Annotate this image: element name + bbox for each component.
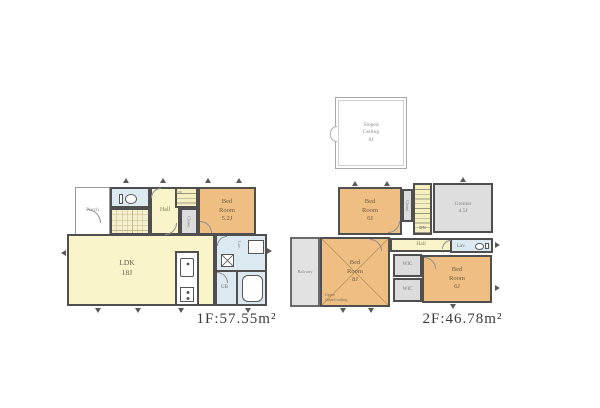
closet-2f-label: Closet (405, 200, 410, 212)
stairs-up-label: UP (176, 190, 182, 196)
grenier-room: Grenier 4.5J (433, 183, 493, 233)
washing-machine-icon (221, 254, 234, 267)
entrance-hatched-area (110, 208, 150, 235)
window-mark-icon (340, 308, 346, 313)
window-mark-icon (135, 308, 141, 313)
stairs-down-label: DN (415, 225, 430, 231)
lav-label: Lav. (457, 244, 466, 250)
closet-2f: Closet (402, 189, 413, 222)
balcony: Balcony (290, 237, 320, 307)
stove-icon (180, 287, 194, 302)
bedroom-2f-southeast-label: Bed Room 6J (449, 266, 465, 291)
window-mark-icon (495, 285, 500, 291)
wic-top: WIC (393, 254, 422, 277)
washroom-1f-label: Lav. (237, 241, 242, 249)
window-mark-icon (384, 181, 390, 186)
toilet-icon (475, 243, 484, 250)
toilet-icon (125, 194, 137, 204)
window-mark-icon (160, 178, 166, 183)
balcony-label: Balcony (298, 269, 313, 275)
kitchen-sink-icon (180, 258, 194, 277)
sloped-ceiling-box: Sloped Ceiling 8J (335, 97, 407, 169)
sloped-ceiling-inner-line (338, 100, 404, 166)
bedroom-1f-label: Bed Room 5.2J (219, 198, 235, 223)
wic-bottom: WIC (393, 278, 422, 302)
washstand-icon (248, 240, 264, 254)
wic-top-label: WIC (403, 262, 413, 269)
bathtub-icon (242, 275, 263, 302)
closet-1f-label: Closet (187, 216, 192, 228)
sloped-ceiling-left-bump (330, 126, 337, 142)
window-mark-icon (495, 242, 500, 248)
wic-bottom-label: WIC (403, 287, 413, 294)
window-mark-icon (61, 250, 66, 256)
lav-room: Lav. (450, 238, 493, 253)
bedroom-2f-west-label: Bed Room 8J (347, 259, 363, 284)
kitchen-counter (175, 251, 199, 306)
floor1-plan: Porch Hall UP Closet Bed Room 5.2J LDK 1… (67, 183, 268, 309)
ub-room (236, 270, 267, 306)
window-mark-icon (460, 177, 466, 182)
floor-plan-image: Sloped Ceiling 8J Porch Hall UP Closet B… (0, 0, 600, 408)
ldk-label: LDK 18J (87, 258, 167, 278)
hall-2f-label: Hall (416, 241, 425, 248)
floor1-area-caption: 1F:57.55m² (159, 311, 314, 328)
window-mark-icon (205, 178, 211, 183)
grenier-label: Grenier 4.5J (455, 201, 472, 215)
toilet-tank-icon (119, 194, 123, 204)
floor2-plan: Balcony Bed Room 8J Upper sloped ceiling… (290, 183, 496, 309)
sloped-ceiling-note: Upper sloped ceiling (325, 292, 347, 302)
window-mark-icon (95, 308, 101, 313)
ub-label: UB (221, 285, 228, 291)
window-mark-icon (368, 308, 374, 313)
window-mark-icon (450, 304, 456, 309)
window-mark-icon (123, 178, 129, 183)
hall-1f-label: Hall (160, 207, 170, 215)
closet-1f: Closet (180, 208, 198, 235)
bedroom-2f-northwest-label: Bed Room 6J (362, 198, 378, 223)
window-mark-icon (352, 181, 358, 186)
window-mark-icon (236, 178, 242, 183)
toilet-tank-icon (485, 243, 489, 249)
wc-room (110, 187, 150, 208)
window-mark-icon (267, 248, 272, 254)
floor2-area-caption: 2F:46.78m² (385, 311, 540, 328)
stairs-down: DN (413, 183, 432, 235)
